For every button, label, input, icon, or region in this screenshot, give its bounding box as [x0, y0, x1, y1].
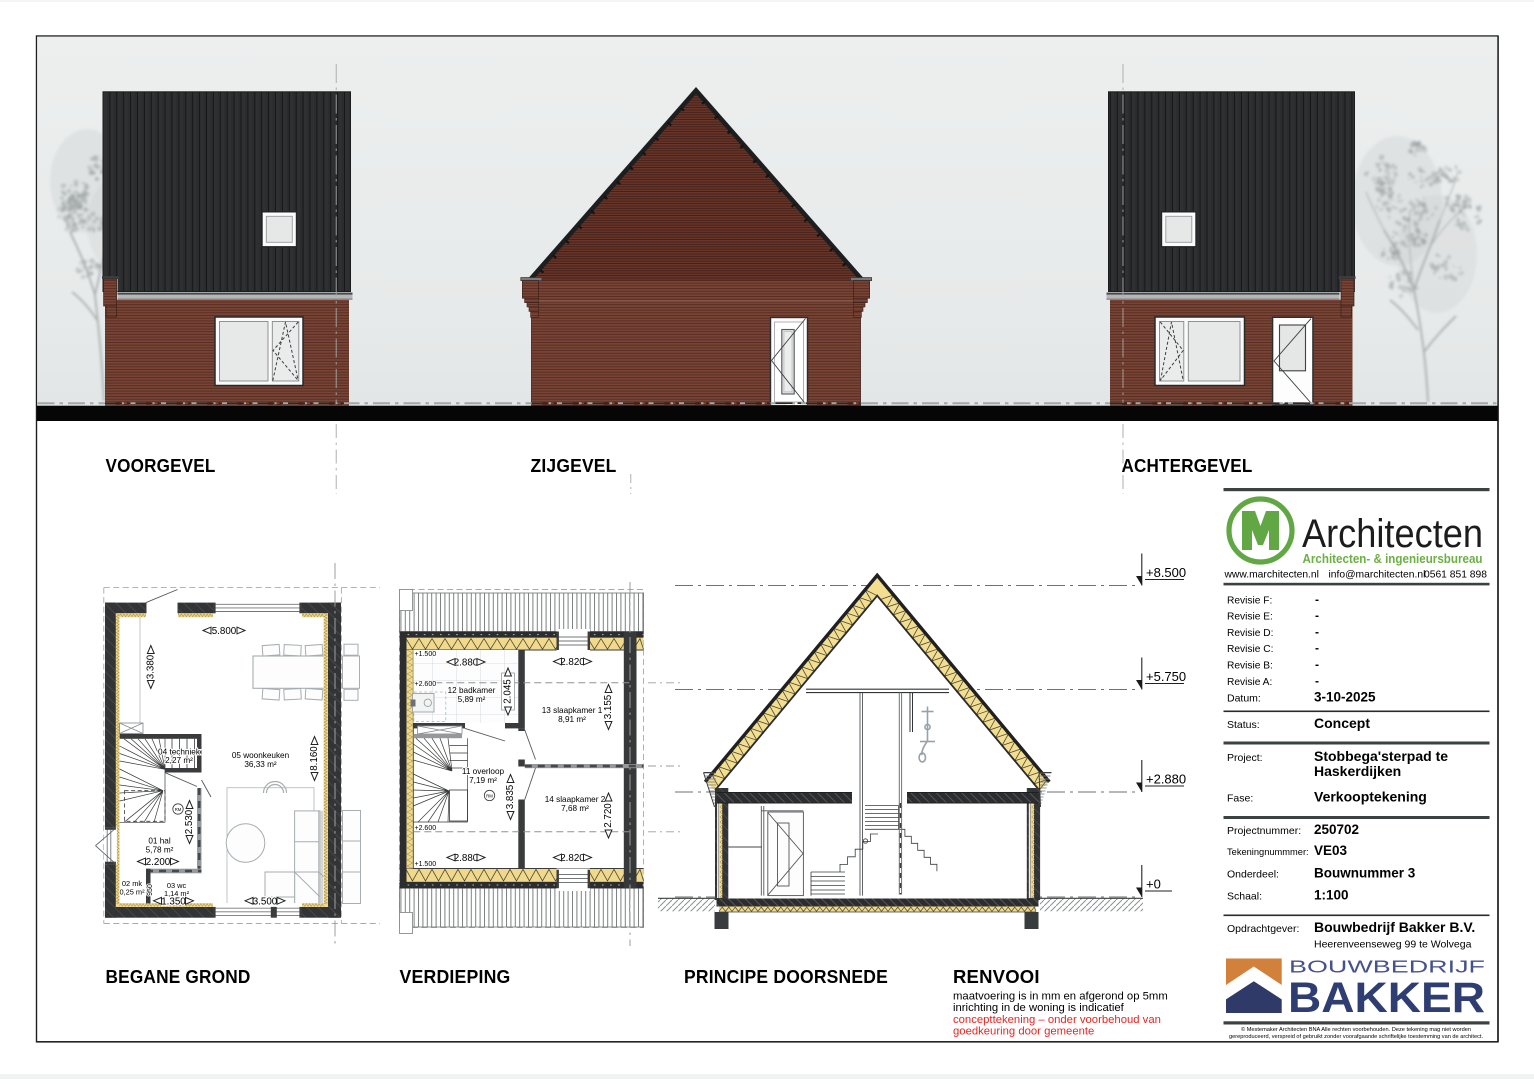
- svg-text:-: -: [1315, 609, 1319, 623]
- svg-text:Project:: Project:: [1227, 752, 1263, 764]
- svg-text:250702: 250702: [1314, 822, 1359, 837]
- svg-text:maatvoering is in mm en afgero: maatvoering is in mm en afgerond op 5mm: [953, 991, 1168, 1003]
- svg-text:05 woonkeuken: 05 woonkeuken: [232, 751, 290, 760]
- svg-text:-: -: [1315, 593, 1319, 607]
- svg-text:VE03: VE03: [1314, 843, 1348, 858]
- svg-text:+1.500: +1.500: [415, 861, 437, 868]
- svg-text:3.500: 3.500: [253, 896, 278, 907]
- svg-text:-: -: [1315, 658, 1319, 672]
- svg-text:Architecten: Architecten: [1302, 512, 1483, 556]
- svg-text:Architecten- & ingenieursburea: Architecten- & ingenieursbureau: [1303, 551, 1483, 566]
- svg-text:VOORGEVEL: VOORGEVEL: [106, 455, 216, 476]
- svg-text:2.820: 2.820: [560, 657, 585, 668]
- svg-text:Revisie F:: Revisie F:: [1227, 596, 1272, 607]
- svg-text:0561 851 898: 0561 851 898: [1424, 570, 1487, 581]
- svg-text:2.200: 2.200: [146, 857, 171, 868]
- svg-text:RM: RM: [175, 807, 182, 812]
- svg-text:13 slaapkamer 1: 13 slaapkamer 1: [542, 706, 603, 715]
- svg-text:Revisie D:: Revisie D:: [1227, 628, 1273, 639]
- svg-text:3.835: 3.835: [505, 784, 516, 809]
- svg-text:goedkeuring door gemeente: goedkeuring door gemeente: [953, 1026, 1094, 1038]
- svg-text:Revisie C:: Revisie C:: [1227, 644, 1273, 655]
- svg-text:2.880: 2.880: [454, 853, 479, 864]
- svg-text:5,78 m²: 5,78 m²: [146, 846, 174, 855]
- svg-text:1.350: 1.350: [161, 896, 186, 907]
- svg-text:Onderdeel:: Onderdeel:: [1227, 869, 1279, 881]
- svg-text:12 badkamer: 12 badkamer: [448, 686, 496, 695]
- svg-text:0,25 m²: 0,25 m²: [119, 888, 145, 897]
- svg-text:ZIJGEVEL: ZIJGEVEL: [531, 455, 617, 476]
- svg-text:5.800: 5.800: [212, 626, 237, 637]
- svg-text:VERDIEPING: VERDIEPING: [400, 966, 511, 987]
- svg-text:2,27 m²: 2,27 m²: [165, 756, 193, 765]
- svg-text:+8.500: +8.500: [1146, 565, 1186, 580]
- svg-text:2.720: 2.720: [603, 803, 614, 828]
- svg-text:Revisie B:: Revisie B:: [1227, 661, 1273, 672]
- svg-text:14 slaapkamer 2: 14 slaapkamer 2: [545, 795, 606, 804]
- svg-text:2.820: 2.820: [560, 853, 585, 864]
- svg-text:Revisie A:: Revisie A:: [1227, 677, 1272, 688]
- svg-text:Tekeningnummmer:: Tekeningnummmer:: [1227, 847, 1309, 857]
- svg-text:Opdrachtgever:: Opdrachtgever:: [1227, 923, 1299, 935]
- svg-text:2.045: 2.045: [503, 679, 514, 704]
- svg-text:Fase:: Fase:: [1227, 793, 1253, 805]
- svg-text:-: -: [1315, 641, 1319, 655]
- svg-text:8,91 m²: 8,91 m²: [558, 715, 586, 724]
- svg-text:-: -: [1315, 674, 1319, 688]
- svg-text:Heerenveenseweg 99 te Wolveg: Heerenveenseweg 99 te Wolvega: [1314, 939, 1472, 951]
- svg-text:11 overloop: 11 overloop: [462, 767, 505, 776]
- svg-text:Projectnummer:: Projectnummer:: [1227, 825, 1301, 837]
- svg-text:www.marchitecten.nl: www.marchitecten.nl: [1224, 570, 1319, 581]
- svg-text:Status:: Status:: [1227, 719, 1260, 731]
- svg-text:+2.880: +2.880: [1146, 772, 1186, 787]
- svg-text:info@marchitecten.nl: info@marchitecten.nl: [1329, 570, 1426, 581]
- svg-text:+1.500: +1.500: [415, 651, 437, 658]
- svg-text:01 hal: 01 hal: [148, 837, 170, 846]
- svg-text:RM: RM: [486, 794, 493, 799]
- svg-text:8.160: 8.160: [309, 746, 320, 771]
- svg-text:1:100: 1:100: [1314, 888, 1349, 903]
- svg-text:gereproduceerd, verspreid of g: gereproduceerd, verspreid of gebruikt zo…: [1229, 1034, 1483, 1040]
- svg-text:3.380: 3.380: [145, 654, 156, 679]
- svg-text:2.880: 2.880: [454, 658, 479, 669]
- svg-text:950: 950: [147, 884, 154, 896]
- svg-text:-: -: [1315, 625, 1319, 639]
- svg-text:Stobbega'sterpad te: Stobbega'sterpad te: [1314, 748, 1448, 764]
- svg-text:+5.750: +5.750: [1146, 669, 1186, 684]
- svg-text:7,68 m²: 7,68 m²: [561, 804, 589, 813]
- svg-text:3.155: 3.155: [603, 694, 614, 719]
- svg-text:BAKKER: BAKKER: [1288, 974, 1485, 1022]
- svg-text:7,19 m²: 7,19 m²: [469, 776, 497, 785]
- svg-text:+2.600: +2.600: [415, 681, 437, 688]
- svg-text:Datum:: Datum:: [1227, 693, 1261, 705]
- svg-text:5,89 m²: 5,89 m²: [458, 695, 486, 704]
- svg-text:Verkooptekening: Verkooptekening: [1314, 789, 1427, 805]
- svg-text:Schaal:: Schaal:: [1227, 891, 1262, 903]
- svg-text:+2.600: +2.600: [415, 825, 437, 832]
- svg-text:3-10-2025: 3-10-2025: [1314, 690, 1376, 705]
- svg-text:Bouwnummer 3: Bouwnummer 3: [1314, 866, 1416, 881]
- svg-text:36,33 m²: 36,33 m²: [244, 760, 277, 769]
- svg-text:Bouwbedrijf Bakker B.V.: Bouwbedrijf Bakker B.V.: [1314, 919, 1475, 935]
- svg-text:concepttekening – onder voorbe: concepttekening – onder voorbehoud van: [953, 1014, 1161, 1026]
- svg-text:© Mestemaker Architecten BNA A: © Mestemaker Architecten BNA Alle rechte…: [1241, 1026, 1471, 1033]
- svg-text:BEGANE GROND: BEGANE GROND: [106, 966, 251, 987]
- svg-text:RENVOOI: RENVOOI: [953, 966, 1040, 987]
- svg-text:inrichting in de woning is ind: inrichting in de woning is indicatief: [953, 1002, 1125, 1014]
- svg-text:Haskerdijken: Haskerdijken: [1314, 763, 1401, 779]
- svg-text:Concept: Concept: [1314, 715, 1370, 731]
- svg-text:ACHTERGEVEL: ACHTERGEVEL: [1122, 455, 1253, 476]
- svg-text:Revisie E:: Revisie E:: [1227, 612, 1273, 623]
- svg-text:PRINCIPE DOORSNEDE: PRINCIPE DOORSNEDE: [684, 966, 888, 987]
- svg-text:+0: +0: [1146, 877, 1161, 892]
- svg-text:2.530: 2.530: [184, 809, 195, 834]
